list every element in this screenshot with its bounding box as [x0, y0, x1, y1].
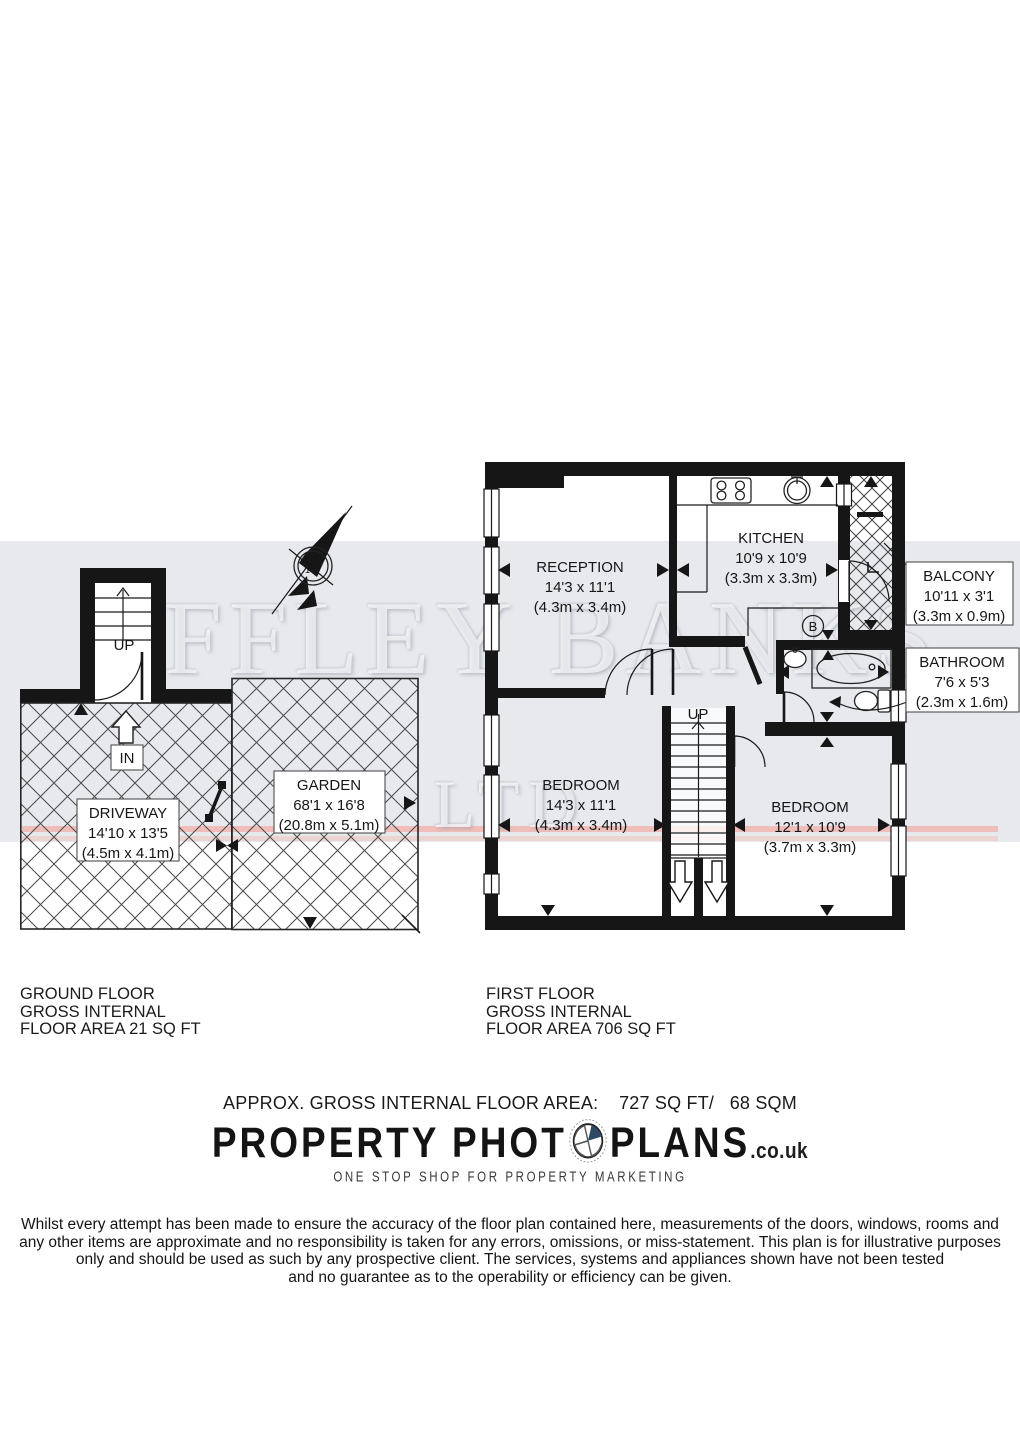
garden-label: GARDEN 68'1 x 16'8 (20.8m x 5.1m): [274, 771, 385, 834]
toilet-icon: [855, 692, 878, 711]
disclaimer-line2: any other items are approximate and no r…: [0, 1234, 1020, 1252]
driveway-name: DRIVEWAY: [89, 805, 167, 822]
floorplan-canvas: N UP IN: [0, 0, 1020, 975]
bathroom-size-imperial: 7'6 x 5'3: [935, 674, 990, 691]
bathroom-name: BATHROOM: [919, 654, 1005, 671]
disclaimer-line3: only and should be used as such by any p…: [0, 1251, 1020, 1269]
garden-size-imperial: 68'1 x 16'8: [293, 797, 365, 814]
bedroom2-name: BEDROOM: [771, 799, 849, 816]
bathroom-size-metric: (2.3m x 1.6m): [916, 694, 1009, 711]
reception-size-imperial: 14'3 x 11'1: [545, 579, 616, 596]
kitchen-size-metric: (3.3m x 3.3m): [725, 570, 818, 587]
bedroom1-size-imperial: 14'3 x 11'1: [546, 797, 617, 814]
first-floor-caption: FIRST FLOOR GROSS INTERNAL FLOOR AREA 70…: [486, 986, 676, 1039]
basin-icon: [784, 651, 806, 668]
gf-caption-line1: GROUND FLOOR: [20, 986, 201, 1004]
ff-caption-line2: GROSS INTERNAL: [486, 1004, 676, 1022]
reception-size-metric: (4.3m x 3.4m): [534, 599, 627, 616]
first-floor-plan: UP B: [484, 462, 1019, 930]
driveway-label: DRIVEWAY 14'10 x 13'5 (4.5m x 4.1m): [77, 799, 179, 862]
logo-tagline: ONE STOP SHOP FOR PROPERTY MARKETING: [0, 1170, 1020, 1185]
balcony-size-imperial: 10'11 x 3'1: [924, 588, 995, 605]
gf-caption-line2: GROSS INTERNAL: [20, 1004, 201, 1022]
ff-caption-line3: FLOOR AREA 706 SQ FT: [486, 1021, 676, 1039]
bedroom2-size-imperial: 12'1 x 10'9: [774, 819, 846, 836]
bedroom2-size-metric: (3.7m x 3.3m): [764, 839, 857, 856]
kitchen-name: KITCHEN: [738, 530, 804, 547]
gf-caption-line3: FLOOR AREA 21 SQ FT: [20, 1021, 201, 1039]
gf-entrance-label: IN: [120, 750, 135, 767]
bathroom-label: BATHROOM 7'6 x 5'3 (2.3m x 1.6m): [906, 648, 1019, 712]
reception-name: RECEPTION: [536, 559, 624, 576]
balcony-size-metric: (3.3m x 0.9m): [913, 608, 1006, 625]
balcony-name: BALCONY: [923, 568, 995, 585]
total-area-summary: APPROX. GROSS INTERNAL FLOOR AREA: 727 S…: [0, 1093, 1020, 1114]
garden-size-metric: (20.8m x 5.1m): [279, 817, 380, 834]
logo-word2: PLANS: [610, 1121, 750, 1164]
ground-floor-plan: UP IN DRIVEWAY: [20, 568, 420, 933]
floorplan-page: OFFLEY BANKS LTD N: [0, 0, 1020, 1443]
gf-stairs-label: UP: [114, 637, 135, 654]
kitchen-label: KITCHEN 10'9 x 10'9 (3.3m x 3.3m): [725, 530, 818, 587]
bedroom1-name: BEDROOM: [542, 777, 620, 794]
bedroom2-label: BEDROOM 12'1 x 10'9 (3.7m x 3.3m): [764, 799, 857, 856]
compass-north-label: N: [305, 557, 320, 578]
compass-rose: N: [272, 506, 352, 614]
logo-domain: .co.uk: [750, 1141, 808, 1164]
ff-stairs-label: UP: [688, 706, 709, 723]
boiler-label: B: [809, 619, 818, 634]
garden-name: GARDEN: [297, 777, 361, 794]
company-logo: PROPERTY PHOT PLANS .co.uk ONE STOP SHOP…: [0, 1124, 1020, 1182]
camera-aperture-icon: [568, 1118, 608, 1164]
disclaimer-line1: Whilst every attempt has been made to en…: [0, 1216, 1020, 1234]
logo-word1: PROPERTY PHOT: [212, 1121, 567, 1164]
ground-floor-caption: GROUND FLOOR GROSS INTERNAL FLOOR AREA 2…: [20, 986, 201, 1039]
driveway-size-metric: (4.5m x 4.1m): [82, 845, 175, 862]
disclaimer-line4: and no guarantee as to the operability o…: [0, 1269, 1020, 1287]
balcony-label: BALCONY 10'11 x 3'1 (3.3m x 0.9m): [906, 562, 1013, 625]
disclaimer-text: Whilst every attempt has been made to en…: [0, 1216, 1020, 1286]
balcony-area: [850, 476, 892, 632]
bedroom1-size-metric: (4.3m x 3.4m): [535, 817, 628, 834]
reception-label: RECEPTION 14'3 x 11'1 (4.3m x 3.4m): [534, 559, 627, 616]
kitchen-size-imperial: 10'9 x 10'9: [735, 550, 807, 567]
hob-icon: [711, 478, 751, 503]
ff-caption-line1: FIRST FLOOR: [486, 986, 676, 1004]
driveway-size-imperial: 14'10 x 13'5: [88, 825, 168, 842]
bedroom1-label: BEDROOM 14'3 x 11'1 (4.3m x 3.4m): [535, 777, 628, 834]
